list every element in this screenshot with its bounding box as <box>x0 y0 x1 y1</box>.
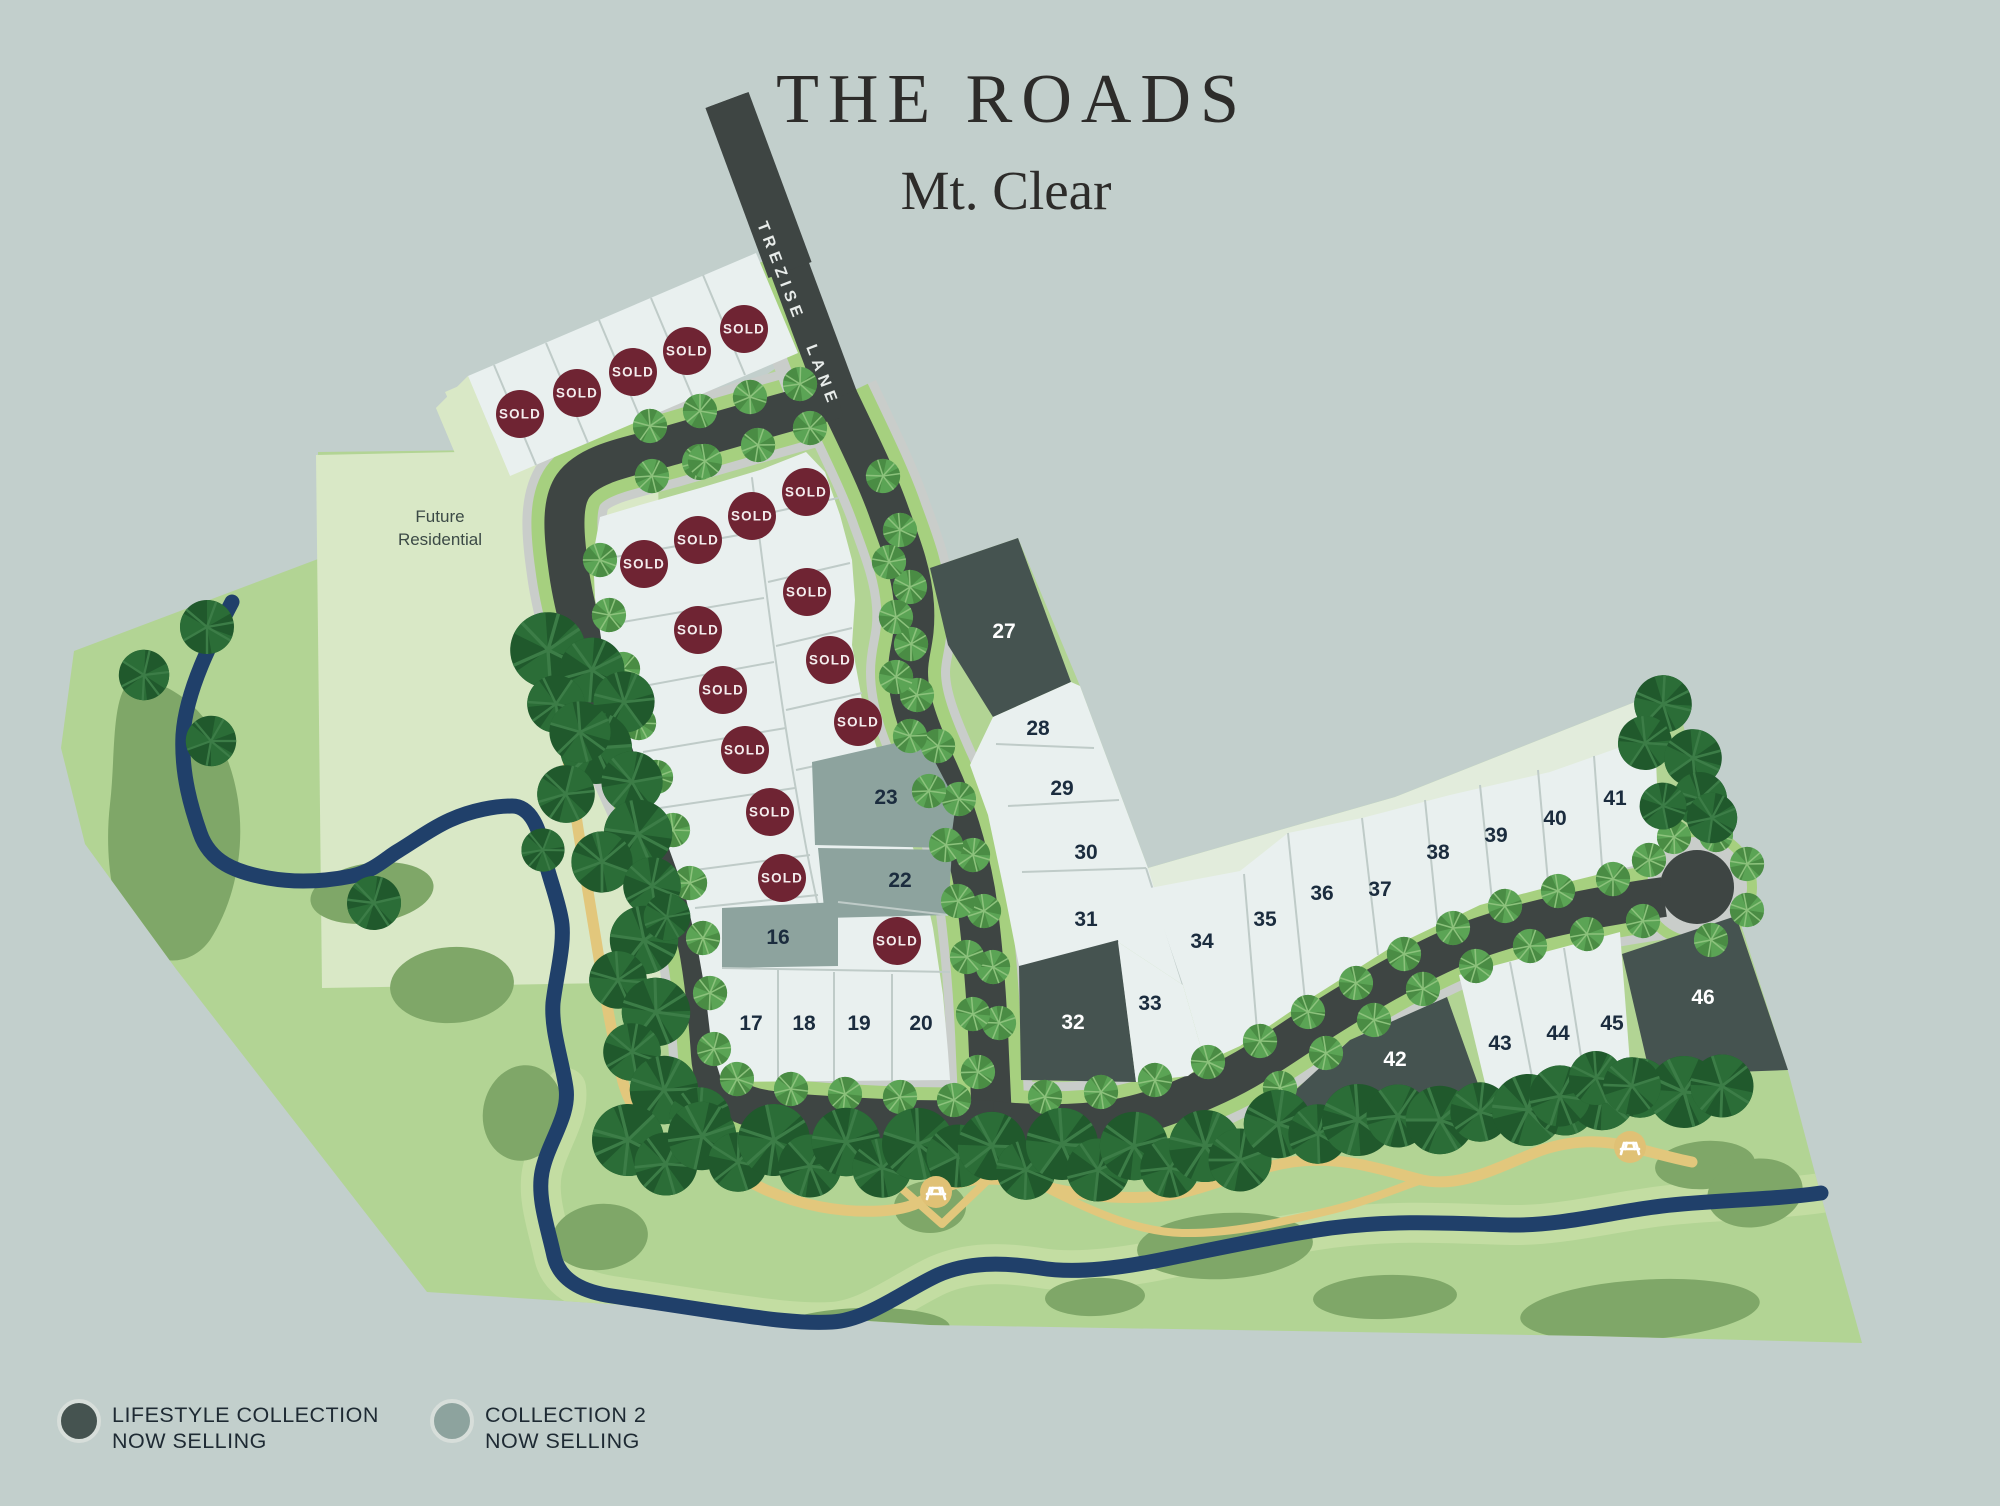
svg-text:NOW SELLING: NOW SELLING <box>485 1429 640 1453</box>
svg-text:SOLD: SOLD <box>723 322 765 337</box>
svg-text:LIFESTYLE COLLECTION: LIFESTYLE COLLECTION <box>112 1403 379 1427</box>
svg-text:SOLD: SOLD <box>749 805 791 820</box>
svg-text:36: 36 <box>1310 882 1333 905</box>
svg-text:31: 31 <box>1074 908 1098 931</box>
svg-text:35: 35 <box>1253 908 1277 931</box>
svg-text:SOLD: SOLD <box>702 683 744 698</box>
svg-text:39: 39 <box>1484 824 1507 847</box>
svg-text:SOLD: SOLD <box>731 509 773 524</box>
svg-text:32: 32 <box>1061 1011 1084 1034</box>
svg-text:SOLD: SOLD <box>876 934 918 949</box>
svg-text:SOLD: SOLD <box>623 557 665 572</box>
svg-text:43: 43 <box>1488 1032 1511 1055</box>
svg-text:SOLD: SOLD <box>809 653 851 668</box>
svg-text:41: 41 <box>1603 787 1627 810</box>
svg-text:SOLD: SOLD <box>785 485 827 500</box>
svg-text:17: 17 <box>739 1012 762 1035</box>
svg-text:SOLD: SOLD <box>677 623 719 638</box>
svg-text:20: 20 <box>909 1012 932 1035</box>
svg-text:45: 45 <box>1600 1012 1624 1035</box>
svg-text:Mt. Clear: Mt. Clear <box>901 160 1112 221</box>
svg-text:19: 19 <box>847 1012 870 1035</box>
svg-text:Future: Future <box>415 507 464 526</box>
svg-text:SOLD: SOLD <box>666 344 708 359</box>
svg-text:NOW SELLING: NOW SELLING <box>112 1429 267 1453</box>
svg-text:SOLD: SOLD <box>724 743 766 758</box>
svg-text:46: 46 <box>1691 986 1714 1009</box>
svg-text:27: 27 <box>992 620 1015 643</box>
svg-text:Residential: Residential <box>398 530 482 549</box>
svg-text:SOLD: SOLD <box>761 871 803 886</box>
svg-text:16: 16 <box>766 926 789 949</box>
svg-text:SOLD: SOLD <box>786 585 828 600</box>
svg-text:37: 37 <box>1368 878 1391 901</box>
svg-text:SOLD: SOLD <box>556 386 598 401</box>
svg-text:22: 22 <box>888 869 911 892</box>
svg-text:23: 23 <box>874 786 897 809</box>
svg-text:28: 28 <box>1026 717 1050 740</box>
svg-text:34: 34 <box>1190 930 1214 953</box>
svg-text:40: 40 <box>1543 807 1566 830</box>
svg-text:COLLECTION 2: COLLECTION 2 <box>485 1403 646 1427</box>
svg-text:38: 38 <box>1426 841 1450 864</box>
svg-text:SOLD: SOLD <box>837 715 879 730</box>
svg-text:42: 42 <box>1383 1048 1406 1071</box>
svg-text:SOLD: SOLD <box>499 407 541 422</box>
svg-text:18: 18 <box>792 1012 816 1035</box>
svg-text:SOLD: SOLD <box>612 365 654 380</box>
svg-text:33: 33 <box>1138 992 1161 1015</box>
svg-text:29: 29 <box>1050 777 1073 800</box>
svg-text:SOLD: SOLD <box>677 533 719 548</box>
svg-text:THE ROADS: THE ROADS <box>776 61 1248 138</box>
svg-text:30: 30 <box>1074 841 1097 864</box>
svg-text:44: 44 <box>1546 1022 1570 1045</box>
